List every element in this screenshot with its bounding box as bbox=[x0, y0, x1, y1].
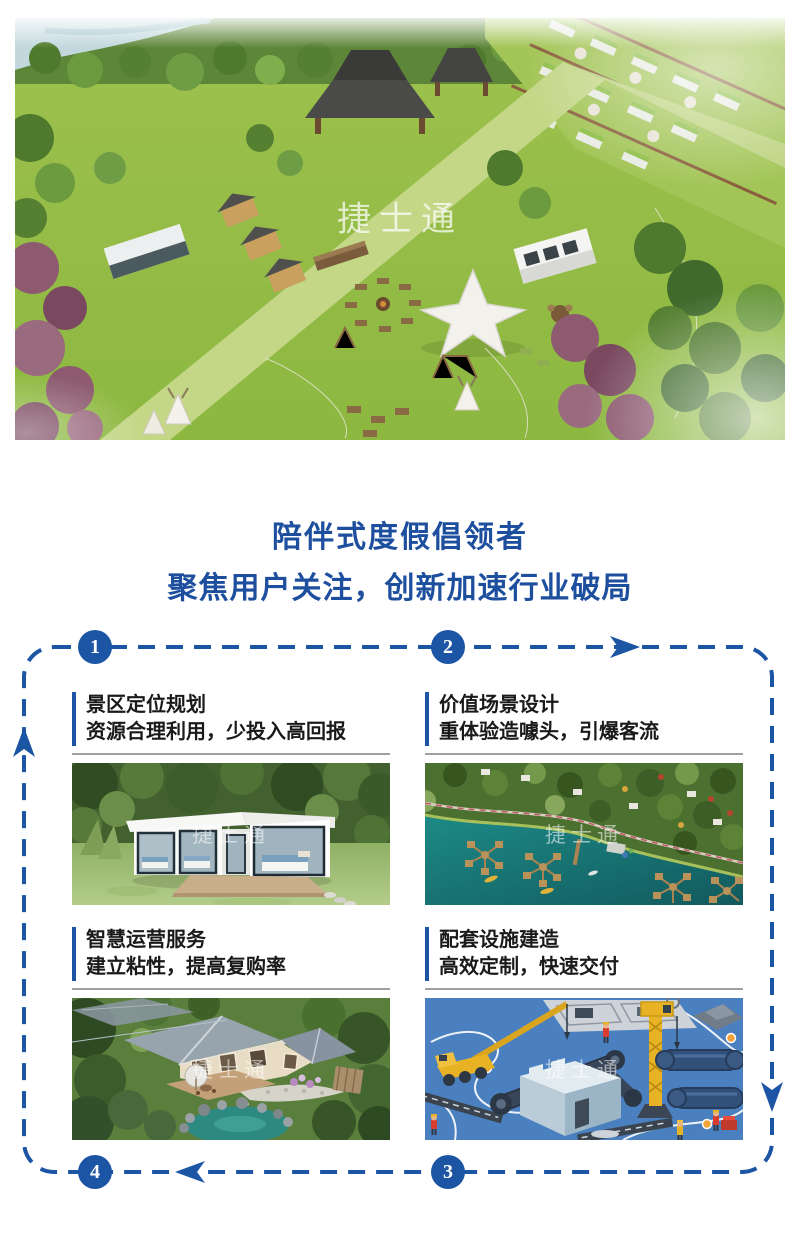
step-circle-3: 3 bbox=[431, 1155, 465, 1189]
feature-block-1-title: 景区定位规划 bbox=[86, 692, 390, 719]
hero-image: 捷士通 bbox=[15, 18, 785, 440]
construction-illustration-graphic bbox=[425, 998, 743, 1140]
feature-block-3: 智慧运营服务 建立粘性，提高复购率 bbox=[72, 927, 390, 1140]
feature-block-2-header: 价值场景设计 重体验造噱头，引爆客流 bbox=[425, 692, 743, 746]
lakeside-aerial-render-graphic bbox=[425, 763, 743, 905]
step-number-1: 1 bbox=[90, 636, 100, 659]
feature-block-3-divider bbox=[72, 988, 390, 990]
headline-line1: 陪伴式度假倡领者 bbox=[0, 512, 800, 556]
step-number-2: 2 bbox=[443, 636, 453, 659]
feature-block-2-title: 价值场景设计 bbox=[439, 692, 743, 719]
feature-block-1-divider bbox=[72, 753, 390, 755]
feature-block-1-image: 捷士通 bbox=[72, 763, 390, 905]
feature-block-2-subtitle: 重体验造噱头，引爆客流 bbox=[439, 719, 743, 746]
arrow-up-icon bbox=[13, 727, 35, 757]
step-number-3: 3 bbox=[443, 1161, 453, 1184]
garden-homestay-render-graphic bbox=[72, 998, 390, 1140]
feature-block-2-divider bbox=[425, 753, 743, 755]
feature-block-1-header: 景区定位规划 资源合理利用，少投入高回报 bbox=[72, 692, 390, 746]
feature-block-3-subtitle: 建立粘性，提高复购率 bbox=[86, 954, 390, 981]
feature-block-4-image: 捷士通 bbox=[425, 998, 743, 1140]
landing-page: 捷士通 陪伴式度假倡领者 聚焦用户关注，创新加速行业破局 1 2 3 4 景区定… bbox=[0, 0, 800, 1248]
modern-cabin-render-graphic bbox=[72, 763, 390, 905]
feature-block-4-title: 配套设施建造 bbox=[439, 927, 743, 954]
feature-block-1-subtitle: 资源合理利用，少投入高回报 bbox=[86, 719, 390, 746]
feature-block-1: 景区定位规划 资源合理利用，少投入高回报 bbox=[72, 692, 390, 905]
step-circle-1: 1 bbox=[78, 630, 112, 664]
feature-block-4-header: 配套设施建造 高效定制，快速交付 bbox=[425, 927, 743, 981]
step-number-4: 4 bbox=[90, 1161, 100, 1184]
step-circle-2: 2 bbox=[431, 630, 465, 664]
headline-line2: 聚焦用户关注，创新加速行业破局 bbox=[0, 563, 800, 607]
feature-block-3-title: 智慧运营服务 bbox=[86, 927, 390, 954]
arrow-down-icon bbox=[761, 1082, 783, 1112]
arrow-right-icon bbox=[610, 636, 640, 658]
feature-block-4-subtitle: 高效定制，快速交付 bbox=[439, 954, 743, 981]
feature-block-2: 价值场景设计 重体验造噱头，引爆客流 bbox=[425, 692, 743, 905]
feature-block-3-image: 捷士通 bbox=[72, 998, 390, 1140]
arrow-left-icon bbox=[175, 1161, 205, 1183]
feature-block-3-header: 智慧运营服务 建立粘性，提高复购率 bbox=[72, 927, 390, 981]
feature-block-4: 配套设施建造 高效定制，快速交付 bbox=[425, 927, 743, 1140]
step-circle-4: 4 bbox=[78, 1155, 112, 1189]
hero-aerial-render-graphic bbox=[15, 18, 785, 440]
feature-block-4-divider bbox=[425, 988, 743, 990]
feature-block-2-image: 捷士通 bbox=[425, 763, 743, 905]
